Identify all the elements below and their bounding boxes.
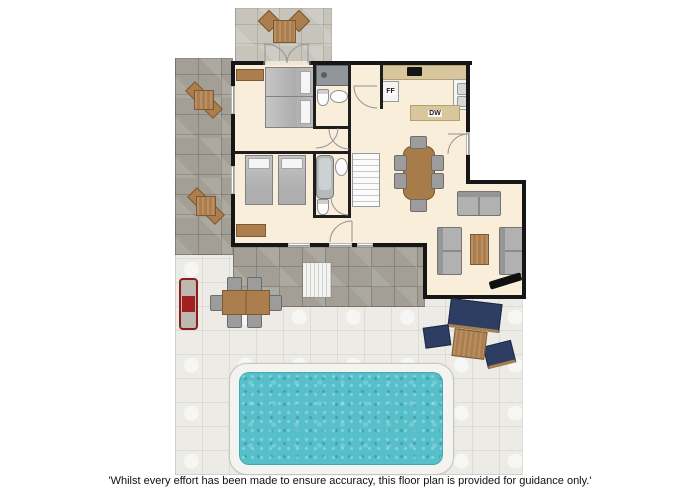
- dining-chair: [394, 155, 407, 171]
- wall: [233, 151, 351, 154]
- dishwasher-island: DW: [410, 105, 460, 121]
- fridge-freezer-label: FF: [385, 88, 396, 95]
- left-patio: [175, 58, 233, 255]
- bed: [265, 96, 314, 128]
- wall: [466, 61, 470, 184]
- patio-table: [196, 196, 216, 216]
- dining-chair: [431, 155, 444, 171]
- dresser: [236, 224, 266, 237]
- door-opening: [329, 243, 352, 247]
- outdoor-dining-chair: [227, 277, 242, 291]
- wall: [466, 180, 526, 184]
- sofa: [499, 227, 524, 275]
- window: [288, 243, 310, 247]
- shower: [316, 65, 349, 86]
- bbq-grill: [179, 278, 198, 330]
- pillow: [300, 100, 311, 124]
- sink-icon: [330, 90, 348, 103]
- outdoor-dining-chair: [269, 295, 282, 311]
- wall: [423, 295, 526, 299]
- kitchen-counter: [382, 65, 468, 80]
- stairs: [352, 153, 380, 207]
- fridge-freezer: FF: [382, 81, 399, 102]
- lounge-coffee-table: [451, 328, 487, 360]
- sink-icon: [335, 158, 348, 176]
- floor-plan: FF DW: [0, 0, 700, 500]
- pillow: [281, 158, 303, 169]
- dining-table: [403, 146, 435, 200]
- wall: [380, 63, 383, 109]
- window: [231, 166, 235, 194]
- bed: [245, 155, 273, 205]
- bed: [278, 155, 306, 205]
- dining-chair: [410, 136, 427, 149]
- wall: [313, 215, 351, 218]
- pillow: [300, 71, 311, 94]
- dishwasher-label: DW: [428, 110, 442, 117]
- shelf: [236, 69, 264, 81]
- toilet-icon: [317, 89, 329, 106]
- dining-chair: [394, 173, 407, 189]
- french-door-opening: [263, 61, 311, 65]
- hob-icon: [407, 67, 422, 76]
- window: [357, 243, 373, 247]
- bed: [265, 67, 314, 98]
- bbq-burner: [182, 296, 195, 312]
- sofa: [457, 191, 501, 216]
- outdoor-dining-chair: [227, 314, 242, 328]
- wall: [313, 151, 316, 218]
- wall: [348, 63, 351, 218]
- disclaimer-text: 'Whilst every effort has been made to en…: [0, 475, 700, 487]
- dining-chair: [410, 199, 427, 212]
- window: [231, 86, 235, 114]
- outdoor-dining-table: [222, 290, 270, 315]
- toilet-icon: [317, 199, 329, 215]
- coffee-table: [470, 234, 489, 265]
- patio-steps: [303, 263, 331, 297]
- patio-table: [194, 90, 214, 110]
- sofa: [437, 227, 462, 275]
- wall: [313, 63, 316, 129]
- pool-surround: [229, 363, 454, 475]
- patio-table: [273, 20, 296, 43]
- bathtub: [316, 155, 334, 199]
- lounge-chair: [423, 324, 452, 348]
- swimming-pool: [239, 372, 443, 465]
- outdoor-dining-chair: [247, 314, 262, 328]
- door-opening: [466, 132, 470, 155]
- wall: [313, 126, 351, 129]
- outdoor-dining-chair: [247, 277, 262, 291]
- pillow: [248, 158, 270, 169]
- wall: [522, 180, 526, 299]
- wall: [423, 243, 427, 299]
- dining-chair: [431, 173, 444, 189]
